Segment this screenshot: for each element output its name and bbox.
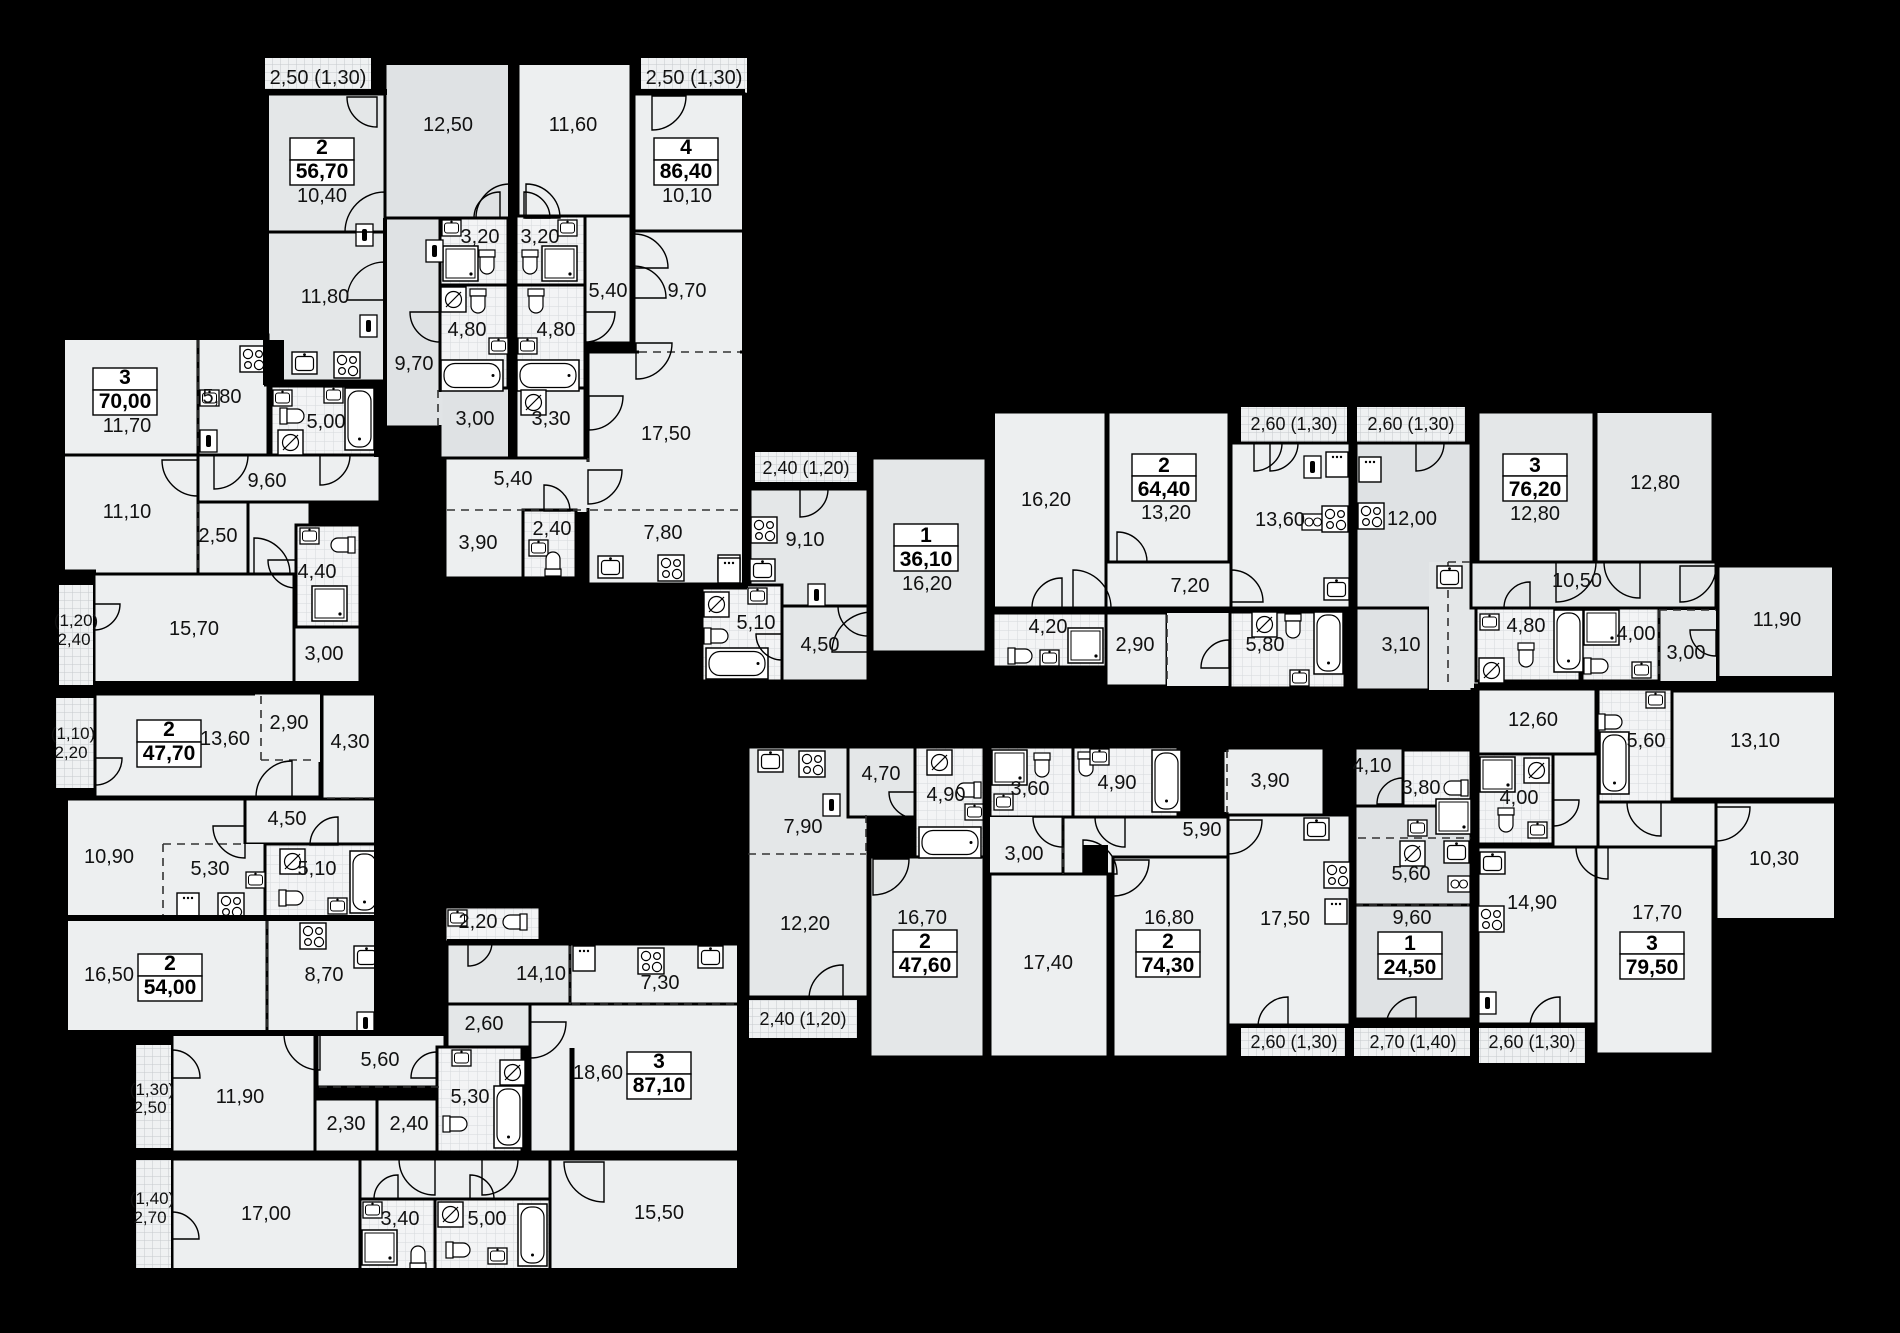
svg-text:4,80: 4,80 [537,319,576,341]
svg-text:17,00: 17,00 [241,1203,291,1225]
svg-text:2: 2 [316,136,328,159]
svg-text:3,60: 3,60 [1011,778,1050,800]
svg-text:3,00: 3,00 [1667,642,1706,664]
svg-text:1: 1 [1404,932,1416,955]
svg-text:15,70: 15,70 [169,618,219,640]
svg-text:5,60: 5,60 [1392,863,1431,885]
svg-text:(1,20): (1,20) [54,611,98,630]
svg-text:3: 3 [653,1050,665,1073]
svg-text:47,60: 47,60 [899,954,952,977]
svg-text:56,70: 56,70 [296,160,349,183]
svg-text:13,20: 13,20 [1141,502,1191,524]
svg-text:4,40: 4,40 [298,561,337,583]
svg-text:5,60: 5,60 [361,1049,400,1071]
svg-text:7,90: 7,90 [784,816,823,838]
svg-text:4,00: 4,00 [1617,623,1656,645]
svg-text:(1,40): (1,40) [130,1189,174,1208]
svg-text:10,30: 10,30 [1749,848,1799,870]
svg-text:10,40: 10,40 [297,185,347,207]
svg-text:54,00: 54,00 [144,976,197,999]
svg-text:9,60: 9,60 [248,470,287,492]
svg-text:11,60: 11,60 [549,114,598,136]
svg-text:4,90: 4,90 [927,784,966,806]
svg-text:9,60: 9,60 [1393,907,1432,929]
svg-text:4,20: 4,20 [1029,616,1068,638]
svg-text:11,90: 11,90 [216,1086,265,1108]
svg-text:3: 3 [1529,454,1541,477]
svg-text:14,10: 14,10 [516,963,566,985]
svg-text:24,50: 24,50 [1384,956,1437,979]
svg-text:4,70: 4,70 [862,763,901,785]
svg-text:87,10: 87,10 [633,1074,686,1097]
svg-text:2,70: 2,70 [133,1208,166,1227]
svg-text:16,20: 16,20 [1021,489,1071,511]
svg-text:4,30: 4,30 [331,731,370,753]
svg-text:5,10: 5,10 [737,612,776,634]
svg-text:2,70 (1,40): 2,70 (1,40) [1369,1032,1456,1052]
svg-text:2,50: 2,50 [199,525,238,547]
svg-text:7,30: 7,30 [641,972,680,994]
svg-text:12,60: 12,60 [1508,709,1558,731]
svg-text:5,00: 5,00 [468,1208,507,1230]
svg-text:5,40: 5,40 [589,280,628,302]
svg-text:13,60: 13,60 [200,728,250,750]
svg-text:2,50: 2,50 [133,1098,166,1117]
svg-text:9,70: 9,70 [395,353,434,375]
svg-text:3,90: 3,90 [1251,770,1290,792]
svg-text:4,50: 4,50 [801,634,840,656]
svg-text:4,90: 4,90 [1098,772,1137,794]
svg-text:4,10: 4,10 [1353,755,1392,777]
svg-text:11,70: 11,70 [103,415,152,437]
svg-text:14,90: 14,90 [1507,892,1557,914]
svg-text:2,50 (1,30): 2,50 (1,30) [646,67,743,89]
svg-text:2: 2 [1162,930,1174,953]
svg-text:3,20: 3,20 [521,226,560,248]
svg-text:(1,10): (1,10) [51,724,95,743]
svg-text:8,70: 8,70 [305,964,344,986]
svg-text:2: 2 [1158,454,1170,477]
svg-text:5,30: 5,30 [191,858,230,880]
svg-text:12,80: 12,80 [1510,503,1560,525]
svg-text:70,00: 70,00 [99,390,152,413]
svg-text:12,80: 12,80 [1630,472,1680,494]
svg-text:5,00: 5,00 [307,411,346,433]
svg-text:2: 2 [919,930,931,953]
svg-text:7,20: 7,20 [1171,575,1210,597]
svg-text:9,10: 9,10 [786,529,825,551]
svg-text:7,80: 7,80 [644,522,683,544]
svg-text:12,50: 12,50 [423,114,473,136]
svg-text:2,60 (1,30): 2,60 (1,30) [1367,414,1454,434]
svg-text:4,00: 4,00 [1500,787,1539,809]
svg-text:79,50: 79,50 [1626,956,1679,979]
svg-text:18,60: 18,60 [573,1062,623,1084]
svg-text:2,40 (1,20): 2,40 (1,20) [759,1009,846,1029]
svg-text:64,40: 64,40 [1138,478,1191,501]
svg-text:74,30: 74,30 [1142,954,1195,977]
svg-text:5,60: 5,60 [1627,730,1666,752]
svg-text:2,50 (1,30): 2,50 (1,30) [270,67,367,89]
svg-text:17,50: 17,50 [1260,908,1310,930]
svg-text:5,40: 5,40 [494,468,533,490]
svg-text:2,60 (1,30): 2,60 (1,30) [1250,1032,1337,1052]
svg-text:13,60: 13,60 [1255,509,1305,531]
svg-text:3,30: 3,30 [532,408,571,430]
svg-text:10,10: 10,10 [662,185,712,207]
svg-text:16,20: 16,20 [902,573,952,595]
svg-text:16,70: 16,70 [897,907,947,929]
svg-text:17,40: 17,40 [1023,952,1073,974]
svg-text:10,50: 10,50 [1552,570,1602,592]
svg-text:4: 4 [680,136,692,159]
svg-text:2,60 (1,30): 2,60 (1,30) [1488,1032,1575,1052]
svg-text:4,80: 4,80 [448,319,487,341]
svg-text:3,20: 3,20 [461,226,500,248]
svg-text:16,50: 16,50 [84,964,134,986]
svg-text:10,90: 10,90 [84,846,134,868]
svg-text:11,80: 11,80 [301,286,350,308]
svg-text:2,60: 2,60 [465,1013,504,1035]
svg-text:3: 3 [1646,932,1658,955]
svg-text:47,70: 47,70 [143,742,196,765]
svg-text:2,20: 2,20 [459,911,498,933]
svg-text:2,90: 2,90 [270,712,309,734]
svg-text:3,90: 3,90 [459,532,498,554]
svg-text:17,50: 17,50 [641,423,691,445]
svg-text:2,40: 2,40 [533,518,572,540]
svg-text:76,20: 76,20 [1509,478,1562,501]
svg-text:16,80: 16,80 [1144,907,1194,929]
svg-text:86,40: 86,40 [660,160,713,183]
svg-text:13,10: 13,10 [1730,730,1780,752]
svg-text:3,00: 3,00 [1005,843,1044,865]
svg-text:4,50: 4,50 [268,808,307,830]
svg-text:2,60 (1,30): 2,60 (1,30) [1250,414,1337,434]
svg-text:9,70: 9,70 [668,280,707,302]
svg-text:5,80: 5,80 [1246,634,1285,656]
svg-text:5,10: 5,10 [298,858,337,880]
svg-text:3,00: 3,00 [305,643,344,665]
svg-text:2,30: 2,30 [327,1113,366,1135]
svg-text:2,40: 2,40 [390,1113,429,1135]
svg-text:3,00: 3,00 [456,408,495,430]
svg-text:3: 3 [119,366,131,389]
svg-text:3,80: 3,80 [1402,777,1441,799]
svg-text:2,90: 2,90 [1116,634,1155,656]
svg-text:2,20: 2,20 [54,743,87,762]
svg-text:36,10: 36,10 [900,548,953,571]
svg-text:5,90: 5,90 [1183,819,1222,841]
svg-text:(1,30): (1,30) [130,1080,174,1099]
svg-text:5,80: 5,80 [203,386,242,408]
svg-text:17,70: 17,70 [1632,902,1682,924]
svg-text:5,30: 5,30 [451,1086,490,1108]
svg-text:11,10: 11,10 [103,501,152,523]
svg-text:1: 1 [920,524,932,547]
svg-text:12,00: 12,00 [1387,508,1437,530]
svg-text:12,20: 12,20 [780,913,830,935]
svg-text:3,10: 3,10 [1382,634,1421,656]
svg-text:2,40 (1,20): 2,40 (1,20) [762,458,849,478]
svg-text:15,50: 15,50 [634,1202,684,1224]
svg-text:11,90: 11,90 [1753,609,1802,631]
svg-text:2,40: 2,40 [57,630,90,649]
svg-text:2: 2 [164,952,176,975]
svg-text:2: 2 [163,718,175,741]
svg-text:3,40: 3,40 [381,1208,420,1230]
svg-text:4,80: 4,80 [1507,615,1546,637]
